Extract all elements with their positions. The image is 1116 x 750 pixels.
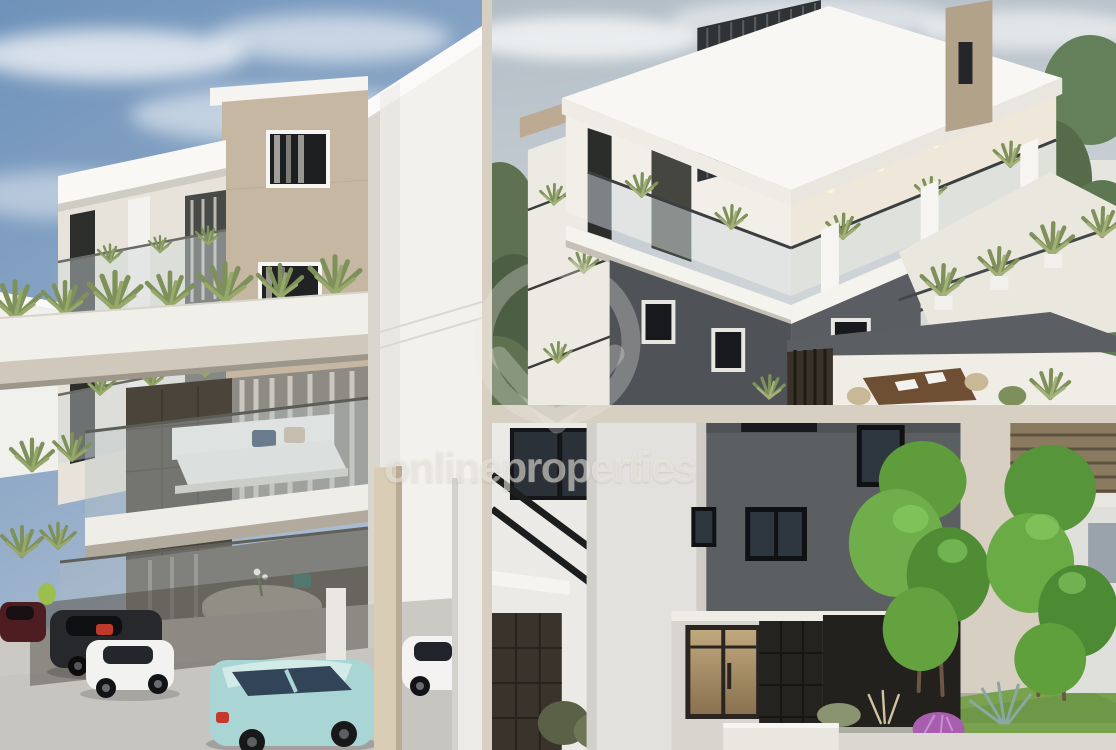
white-pillar	[452, 478, 482, 750]
collage-canvas: onlineproperties	[0, 0, 1116, 750]
car-maroon	[0, 602, 46, 642]
louvre-slats	[787, 348, 833, 405]
photo-entrance-view	[492, 423, 1116, 750]
car-teal	[206, 660, 378, 750]
car-white-left	[80, 640, 180, 701]
aerial-view-render-graphic	[492, 0, 1116, 405]
shrub	[38, 583, 56, 605]
street-view-render-graphic	[0, 0, 482, 750]
beige-pillar	[374, 466, 402, 750]
window	[266, 130, 330, 188]
entrance-view-render-graphic	[492, 423, 1116, 750]
watermark-pin-tip	[527, 405, 587, 423]
photo-street-view	[0, 0, 482, 750]
photo-aerial-view	[492, 0, 1116, 405]
